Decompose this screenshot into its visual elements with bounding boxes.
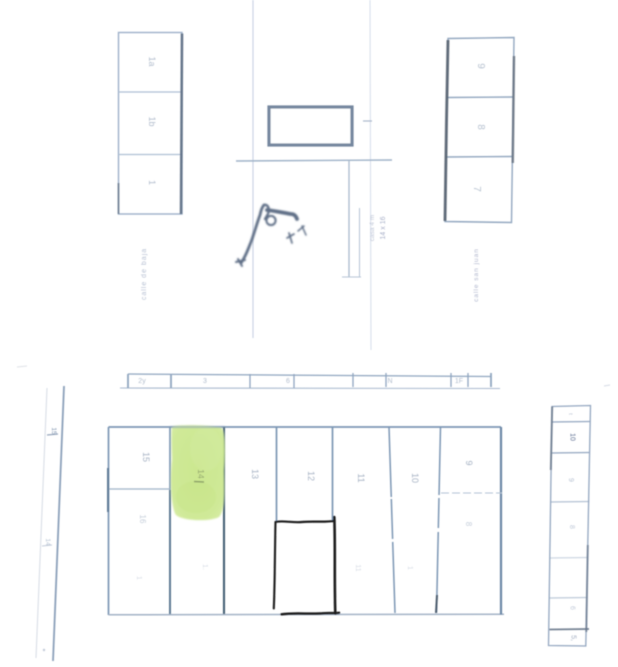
svg-text:1: 1	[135, 576, 142, 580]
svg-text:14: 14	[196, 469, 206, 479]
svg-text:14 x 16: 14 x 16	[380, 216, 387, 239]
svg-text:6: 6	[286, 378, 290, 385]
svg-text:3: 3	[203, 378, 207, 385]
svg-text:8: 8	[464, 522, 473, 527]
svg-text:9: 9	[464, 460, 474, 465]
svg-text:13: 13	[250, 469, 260, 479]
svg-text:1: 1	[147, 180, 157, 185]
svg-text:calle de baja: calle de baja	[141, 248, 148, 300]
svg-text:15: 15	[141, 452, 151, 462]
svg-text:2y: 2y	[138, 378, 146, 385]
svg-text:1.: 1.	[201, 564, 208, 570]
svg-text:7: 7	[471, 186, 482, 192]
svg-text:16: 16	[138, 515, 147, 524]
svg-text:12: 12	[306, 471, 316, 481]
svg-text:8: 8	[568, 525, 575, 529]
svg-text:10: 10	[569, 433, 576, 441]
svg-text:10: 10	[410, 473, 420, 483]
svg-text:11: 11	[356, 473, 366, 482]
svg-text:9: 9	[475, 63, 486, 69]
svg-text:11: 11	[354, 564, 361, 571]
svg-text:calle san juan: calle san juan	[473, 248, 480, 302]
svg-text:1F: 1F	[455, 378, 463, 385]
svg-text:N: N	[387, 378, 392, 385]
svg-text:casa 4 m: casa 4 m	[369, 215, 376, 241]
svg-text:8: 8	[475, 124, 486, 130]
svg-text:6: 6	[569, 606, 576, 610]
svg-text:1a: 1a	[147, 56, 157, 66]
svg-text:1: 1	[406, 566, 413, 570]
svg-text:1b: 1b	[147, 116, 157, 126]
svg-text:9: 9	[567, 478, 574, 482]
svg-text:5,: 5,	[570, 635, 577, 641]
